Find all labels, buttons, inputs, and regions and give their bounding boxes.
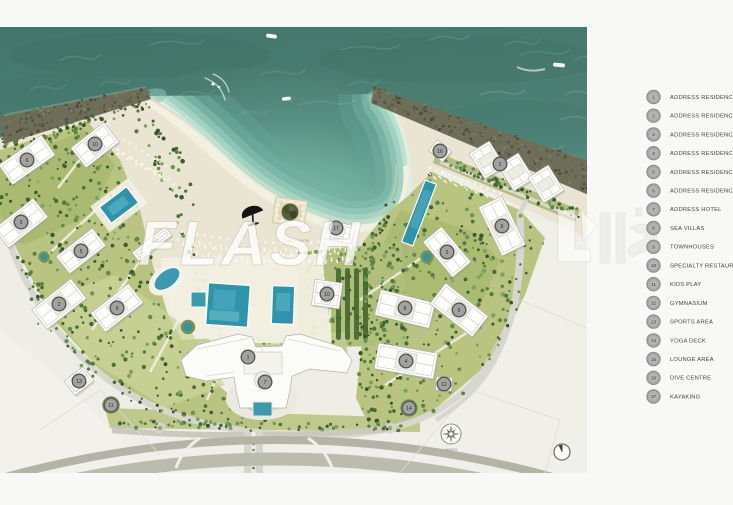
svg-text:14: 14 bbox=[651, 338, 657, 343]
svg-text:16: 16 bbox=[437, 149, 443, 155]
svg-text:15: 15 bbox=[651, 357, 657, 362]
svg-text:5: 5 bbox=[652, 170, 655, 175]
svg-text:11: 11 bbox=[651, 282, 656, 287]
svg-text:9: 9 bbox=[116, 306, 119, 312]
svg-text:1: 1 bbox=[247, 355, 250, 361]
svg-text:2: 2 bbox=[499, 162, 502, 168]
svg-text:10: 10 bbox=[324, 292, 330, 298]
svg-text:ADDRESS RESIDENCES 2: ADDRESS RESIDENCES 2 bbox=[670, 114, 733, 120]
svg-text:10: 10 bbox=[92, 142, 98, 148]
svg-text:4: 4 bbox=[652, 151, 655, 156]
svg-text:ADDRESS HOTEL: ADDRESS HOTEL bbox=[670, 207, 722, 213]
svg-text:ADDRESS RESIDENCES 1: ADDRESS RESIDENCES 1 bbox=[670, 95, 733, 101]
svg-text:8: 8 bbox=[652, 226, 655, 231]
svg-text:8: 8 bbox=[404, 306, 407, 312]
svg-text:9: 9 bbox=[652, 245, 655, 250]
svg-text:13: 13 bbox=[76, 379, 82, 385]
svg-text:6: 6 bbox=[501, 224, 504, 230]
svg-text:ADDRESS RESIDENCES 5: ADDRESS RESIDENCES 5 bbox=[670, 170, 733, 176]
svg-text:DIVE CENTRE: DIVE CENTRE bbox=[670, 376, 711, 382]
svg-text:14: 14 bbox=[406, 406, 412, 412]
svg-text:10: 10 bbox=[651, 263, 657, 268]
svg-text:1: 1 bbox=[652, 95, 655, 100]
svg-text:FLASH: FLASH bbox=[138, 209, 363, 279]
svg-text:GYMNASIUM: GYMNASIUM bbox=[670, 301, 708, 307]
svg-text:6: 6 bbox=[26, 158, 29, 164]
svg-text:2: 2 bbox=[446, 250, 449, 256]
svg-text:SEA VILLAS: SEA VILLAS bbox=[670, 226, 705, 232]
svg-text:7: 7 bbox=[264, 380, 267, 386]
svg-text:2: 2 bbox=[58, 302, 61, 308]
svg-text:7: 7 bbox=[652, 207, 655, 212]
svg-text:4: 4 bbox=[405, 359, 408, 365]
svg-text:5: 5 bbox=[458, 308, 461, 314]
svg-text:SPORTS AREA: SPORTS AREA bbox=[670, 320, 713, 326]
svg-text:TOWNHOUSES: TOWNHOUSES bbox=[670, 245, 714, 251]
svg-text:3: 3 bbox=[652, 132, 655, 137]
svg-text:ADDRESS RESIDENCES 3: ADDRESS RESIDENCES 3 bbox=[670, 132, 733, 138]
svg-text:YOGA DECK: YOGA DECK bbox=[670, 338, 706, 344]
svg-text:ADDRESS RESIDENCES 4: ADDRESS RESIDENCES 4 bbox=[670, 151, 733, 157]
svg-text:13: 13 bbox=[651, 319, 657, 324]
svg-text:NORTH: NORTH bbox=[445, 448, 458, 452]
svg-text:17: 17 bbox=[651, 394, 657, 399]
svg-text:11: 11 bbox=[108, 403, 113, 409]
svg-text:2: 2 bbox=[652, 113, 655, 118]
svg-text:KAYAKING: KAYAKING bbox=[670, 394, 701, 400]
svg-text:16: 16 bbox=[651, 376, 657, 381]
svg-text:3: 3 bbox=[20, 220, 23, 226]
svg-text:SPECIALTY RESTAURANT: SPECIALTY RESTAURANT bbox=[670, 263, 733, 269]
svg-text:5: 5 bbox=[80, 249, 83, 255]
svg-text:KIDS PLAY: KIDS PLAY bbox=[670, 282, 701, 288]
svg-text:12: 12 bbox=[651, 301, 657, 306]
svg-text:6: 6 bbox=[652, 188, 655, 193]
svg-text:12: 12 bbox=[441, 382, 447, 388]
svg-text:ADDRESS RESIDENCES 6: ADDRESS RESIDENCES 6 bbox=[670, 189, 733, 195]
svg-text:LOUNGE AREA: LOUNGE AREA bbox=[670, 357, 714, 363]
